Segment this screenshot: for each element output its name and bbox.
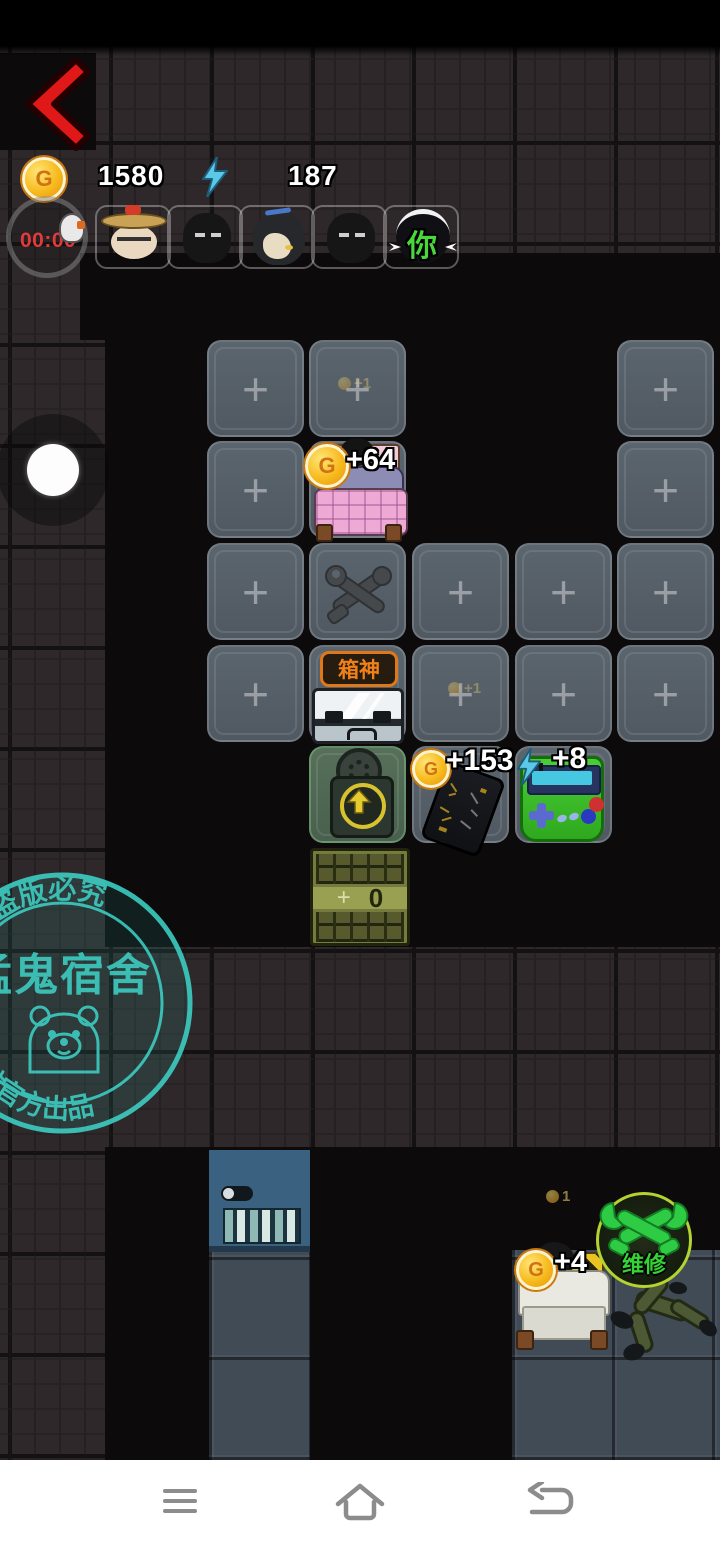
dark-silhouette: [183, 213, 231, 263]
avatar-slot-ghost-2[interactable]: [311, 205, 387, 269]
back-nav-icon[interactable]: [524, 1482, 576, 1522]
upgrade-ring: [340, 783, 386, 829]
bed-foot: [385, 524, 402, 542]
girl-moon-clip: [285, 245, 293, 250]
grandma-glasses: [117, 237, 151, 241]
up-arrow-icon: [344, 787, 374, 817]
status-bar: [0, 0, 720, 56]
placement-tile[interactable]: +: [617, 645, 714, 742]
coin-icon: [448, 682, 461, 695]
upgrade-pad[interactable]: [330, 776, 394, 838]
card-income: +153: [446, 744, 514, 778]
coin-icon: G: [412, 750, 450, 788]
dark-silhouette: [327, 213, 375, 263]
placement-tile[interactable]: +: [515, 543, 612, 640]
placement-plus: +: [652, 569, 679, 615]
bed2-income: +4: [554, 1246, 587, 1279]
energy-bolt-icon: [516, 748, 542, 786]
floating-coin-ghost: +1: [338, 375, 371, 392]
console-dpad: [529, 811, 554, 820]
door-window-slats: [223, 1208, 301, 1244]
placement-tile[interactable]: +: [207, 543, 304, 640]
placement-tile[interactable]: +: [617, 543, 714, 640]
menu-icon[interactable]: [163, 1509, 197, 1513]
coin-icon: G: [516, 1250, 556, 1290]
door-handle: [223, 1186, 253, 1201]
avatar-slot-you[interactable]: 你: [383, 205, 459, 269]
chest-handle: [347, 728, 377, 740]
placement-plus: +: [242, 467, 269, 513]
watermark-title: 猛鬼宿舍: [0, 951, 152, 1000]
silhouette-eye: [195, 233, 205, 237]
timer-character-flag: [77, 221, 85, 229]
grandma-hat: [101, 213, 167, 229]
door-center-band: + 0: [313, 887, 407, 909]
placement-tile[interactable]: +: [412, 543, 509, 640]
energy-count: 187: [288, 160, 338, 192]
placement-plus: +: [550, 671, 577, 717]
android-nav-bar: [0, 1460, 720, 1544]
console-button-red: [589, 797, 604, 812]
door-grid-top: [316, 854, 404, 884]
placement-tile[interactable]: +: [515, 645, 612, 742]
placement-tile[interactable]: +: [617, 441, 714, 538]
avatar-slot-girl[interactable]: [239, 205, 315, 269]
placement-plus: +: [447, 569, 474, 615]
floating-coin-ghost: 1: [546, 1188, 570, 1205]
bottom-left-room-floor: [209, 1252, 310, 1460]
menu-icon[interactable]: [163, 1489, 197, 1493]
coin-count: 1580: [98, 160, 164, 192]
chest-hinge: [325, 711, 343, 723]
box-god-chest[interactable]: [312, 688, 404, 744]
energy-bolt-icon: [201, 157, 229, 197]
back-button[interactable]: [14, 54, 94, 158]
coin-icon: [338, 377, 351, 390]
console-income: +8: [552, 742, 586, 776]
placement-plus: +: [242, 569, 269, 615]
placement-tile[interactable]: +: [207, 340, 304, 437]
placement-plus: +: [242, 366, 269, 412]
bed-foot: [590, 1330, 608, 1350]
bed-foot: [516, 1330, 534, 1350]
tools-icon[interactable]: [322, 556, 396, 630]
placement-tile[interactable]: +: [207, 645, 304, 742]
chest-hinge: [373, 711, 391, 723]
placement-plus: +: [550, 569, 577, 615]
placement-tile[interactable]: +: [207, 441, 304, 538]
console-button: [568, 812, 580, 822]
silhouette-eye: [355, 233, 365, 237]
box-god-label: 箱神: [320, 651, 398, 687]
floating-coin-ghost: +1: [448, 680, 481, 697]
menu-icon[interactable]: [163, 1499, 197, 1503]
avatar-slot-ghost-1[interactable]: [167, 205, 243, 269]
blue-door[interactable]: [209, 1150, 310, 1252]
round-timer: 00:00: [6, 196, 88, 278]
repair-button[interactable]: 维修: [596, 1192, 692, 1288]
grid-door[interactable]: + 0: [310, 848, 410, 946]
placement-plus: +: [652, 366, 679, 412]
you-label: 你: [407, 221, 437, 265]
placement-plus: +: [242, 671, 269, 717]
coin-icon: G: [305, 444, 349, 488]
coin-icon: [546, 1190, 559, 1203]
anti-piracy-watermark: 耻 盗版必究 猛鬼宿舍 工坊官方出品: [0, 868, 200, 1138]
avatar-slot-grandma[interactable]: [95, 205, 171, 269]
coin-icon: G: [22, 157, 66, 201]
joystick-knob[interactable]: [27, 444, 79, 496]
home-icon[interactable]: [334, 1482, 386, 1522]
placement-plus: +: [652, 467, 679, 513]
game-screen: G 1580 187 00:00 你: [0, 0, 720, 1544]
bed1-income: +64: [346, 444, 395, 477]
grandma-face: [111, 225, 157, 259]
bed-foot: [316, 524, 333, 542]
placement-plus: +: [652, 671, 679, 717]
silhouette-eye: [211, 233, 221, 237]
door-grid-bottom: [316, 912, 404, 942]
silhouette-eye: [339, 233, 349, 237]
grandma-hat-button: [125, 205, 141, 215]
repair-label: 维修: [599, 1247, 689, 1279]
console-button: [556, 814, 568, 824]
placement-tile[interactable]: +: [617, 340, 714, 437]
